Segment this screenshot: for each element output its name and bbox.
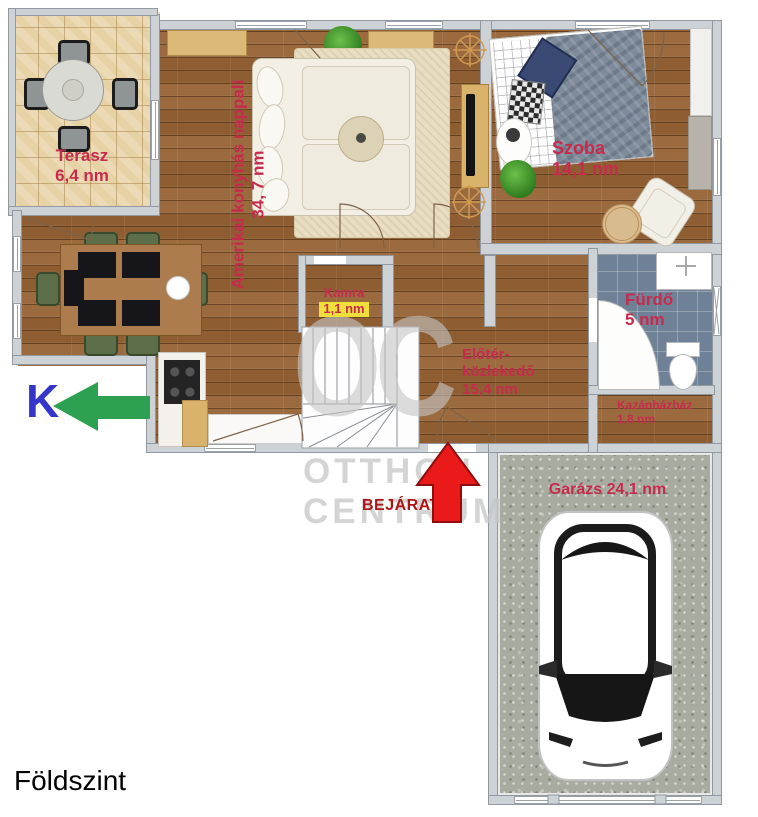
wall-terrace-top — [8, 8, 158, 16]
closet — [690, 28, 712, 116]
room-label-kazanhaz: Kazánházház 1,8 nm — [617, 399, 692, 427]
wall-kamra-top — [298, 255, 394, 265]
placemat — [122, 252, 160, 278]
placemat — [122, 300, 160, 326]
window — [235, 21, 307, 29]
coffee-table-decor — [356, 133, 366, 143]
wall-bath-left — [588, 248, 598, 453]
compass-arrow — [48, 378, 154, 434]
window — [385, 21, 443, 29]
terrace-chair — [112, 78, 138, 110]
room-label-garazs: Garázs 24,1 nm — [535, 481, 680, 499]
room-area: 1,1 nm — [319, 302, 368, 317]
room-name: Kamra — [310, 286, 378, 301]
room-label-nappali: Amerikai konyhás nappali 34, 7 nm — [228, 57, 267, 313]
room-name: Szoba — [552, 138, 619, 159]
window — [713, 138, 721, 196]
room-name: Amerikai konyhás nappali — [228, 57, 248, 313]
room-area: 5 nm — [625, 310, 673, 330]
window — [13, 236, 21, 272]
room-area: 1,8 nm — [617, 413, 692, 427]
room-label-elokozlekedo: Előtér- közlekedő 15,4 nm — [462, 346, 535, 398]
room-label-furdo: Fürdő 5 nm — [625, 290, 673, 329]
room-area: 15,4 nm — [462, 381, 535, 398]
wall-dining-bottom — [12, 355, 154, 365]
wall-terrace-bottom — [8, 206, 160, 216]
tv — [466, 94, 475, 176]
floor-title: Földszint — [14, 765, 126, 797]
window — [204, 444, 256, 452]
room-area: 14,1 nm — [552, 159, 619, 180]
bathroom-window — [713, 286, 721, 336]
room-label-terasz: Terasz 6,4 nm — [26, 146, 138, 185]
room-label-kamra: Kamra 1,1 nm — [310, 286, 378, 317]
room-name-line2: közlekedő — [462, 363, 535, 380]
wall-hall-stub — [484, 255, 496, 327]
bedside-rug — [496, 118, 532, 166]
wall-garage-top — [488, 443, 722, 453]
floor-plan: OC OTTHON CENTRUM Terasz 6,4 nm Amerikai… — [0, 0, 758, 817]
terrace-table-center — [62, 79, 84, 101]
room-area: 34, 7 nm — [248, 57, 268, 313]
kitchen-counter-wood — [182, 400, 208, 447]
placemat — [64, 270, 84, 306]
wardrobe — [688, 116, 712, 190]
wall-terrace-left — [8, 8, 16, 214]
round-rug — [602, 204, 642, 244]
room-name: Kazánházház — [617, 399, 692, 413]
bathroom-door-gap — [589, 298, 597, 342]
room-name-line1: Előtér- — [462, 346, 535, 363]
bedside-decor — [506, 128, 520, 142]
terrace-door — [151, 100, 159, 160]
room-name: Terasz — [26, 146, 138, 166]
dining-chair — [36, 272, 60, 306]
car-top-view — [533, 506, 679, 788]
room-area: 6,4 nm — [26, 166, 138, 186]
garage-door — [514, 796, 702, 804]
entrance-arrow — [414, 440, 482, 525]
plate — [166, 276, 190, 300]
sideboard — [167, 30, 247, 56]
wall-house-left — [12, 210, 22, 365]
room-label-szoba: Szoba 14,1 nm — [552, 138, 619, 179]
kamra-door-gap — [314, 256, 346, 264]
room-name: Fürdő — [625, 290, 673, 310]
sink — [656, 252, 712, 290]
plant — [500, 160, 536, 198]
window — [13, 303, 21, 339]
stove — [164, 360, 200, 404]
